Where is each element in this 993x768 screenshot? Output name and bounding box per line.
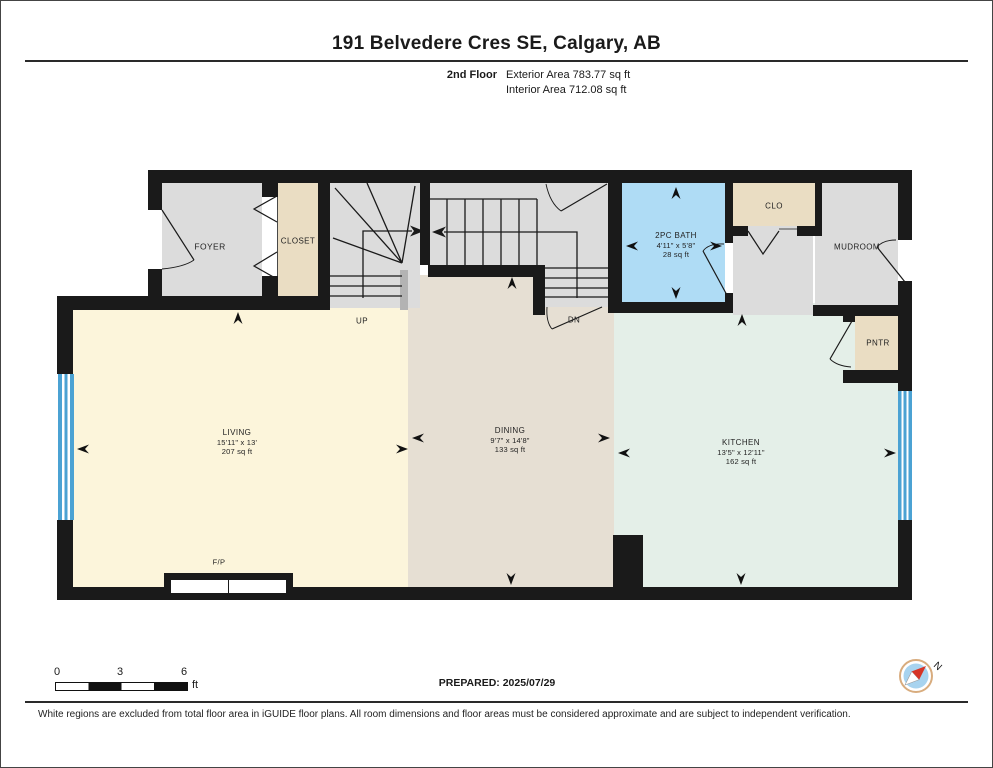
- scale-bar: [55, 682, 188, 691]
- wall: [843, 370, 912, 383]
- wall: [843, 305, 855, 322]
- wall: [898, 170, 912, 240]
- wall: [148, 170, 162, 210]
- wall: [533, 265, 545, 315]
- wall: [262, 276, 278, 298]
- fireplace-label: F/P: [213, 557, 226, 567]
- footer-divider-line: [25, 701, 968, 703]
- window-left: [58, 374, 74, 520]
- wall: [262, 183, 278, 197]
- scale-tick-6: 6: [181, 666, 187, 678]
- wall: [420, 183, 430, 265]
- room-label-living: LIVING 15'11" x 13' 207 sq ft: [217, 428, 257, 457]
- compass-needle-head: [912, 666, 926, 680]
- wall: [57, 296, 73, 374]
- compass-north-label: N: [931, 660, 944, 673]
- room-label-mudroom: MUDROOM: [834, 242, 880, 252]
- stairs-down-label: DN: [568, 315, 580, 325]
- stair-floor-mid: [428, 183, 537, 265]
- wall: [608, 183, 622, 313]
- scale-tick-0: 0: [54, 666, 60, 678]
- room-label-clo: CLO: [765, 201, 783, 211]
- wall: [608, 302, 733, 313]
- compass-icon: N: [892, 652, 948, 700]
- stair-landing-floor: [537, 183, 608, 307]
- wall: [57, 296, 330, 310]
- disclaimer-text: White regions are excluded from total fl…: [38, 709, 851, 720]
- stairs-up-label: UP: [356, 316, 368, 326]
- wall: [725, 293, 733, 313]
- room-label-kitchen: KITCHEN 13'5" x 12'11" 162 sq ft: [717, 438, 765, 467]
- wall: [815, 183, 822, 236]
- room-label-dining: DINING 9'7" x 14'8" 133 sq ft: [490, 426, 529, 455]
- room-label-bath: 2PC BATH 4'11" x 5'8" 28 sq ft: [655, 231, 697, 260]
- wall: [813, 305, 912, 316]
- prepared-date: PREPARED: 2025/07/29: [350, 677, 644, 689]
- interior-area: Interior Area 712.08 sq ft: [506, 84, 626, 96]
- window-right: [898, 391, 912, 520]
- wall: [148, 170, 912, 183]
- scale-unit: ft: [192, 679, 198, 691]
- wall-pillar: [613, 535, 643, 600]
- fireplace-divider: [228, 580, 229, 593]
- wall: [148, 269, 162, 298]
- wall: [733, 226, 748, 236]
- room-label-foyer: FOYER: [194, 242, 225, 252]
- wall: [428, 265, 540, 277]
- foyer-floor: [162, 183, 262, 296]
- floorplan-page: 191 Belvedere Cres SE, Calgary, AB 2nd F…: [0, 0, 993, 768]
- room-label-closet: CLOSET: [281, 236, 315, 246]
- hall-floor: [733, 226, 813, 315]
- wall: [318, 183, 330, 298]
- stair-half-wall: [400, 270, 408, 310]
- compass-needle-tail: [905, 671, 919, 685]
- wall: [725, 183, 733, 243]
- header-rule: [25, 60, 968, 62]
- wall: [898, 520, 912, 600]
- compass-face: [904, 664, 929, 689]
- exterior-area: Exterior Area 783.77 sq ft: [506, 69, 630, 81]
- floor-label: 2nd Floor: [0, 69, 497, 81]
- compass-ring: [900, 660, 932, 692]
- room-label-pantry: PNTR: [866, 338, 889, 348]
- wall: [797, 226, 815, 236]
- property-title: 191 Belvedere Cres SE, Calgary, AB: [0, 33, 993, 55]
- scale-tick-3: 3: [117, 666, 123, 678]
